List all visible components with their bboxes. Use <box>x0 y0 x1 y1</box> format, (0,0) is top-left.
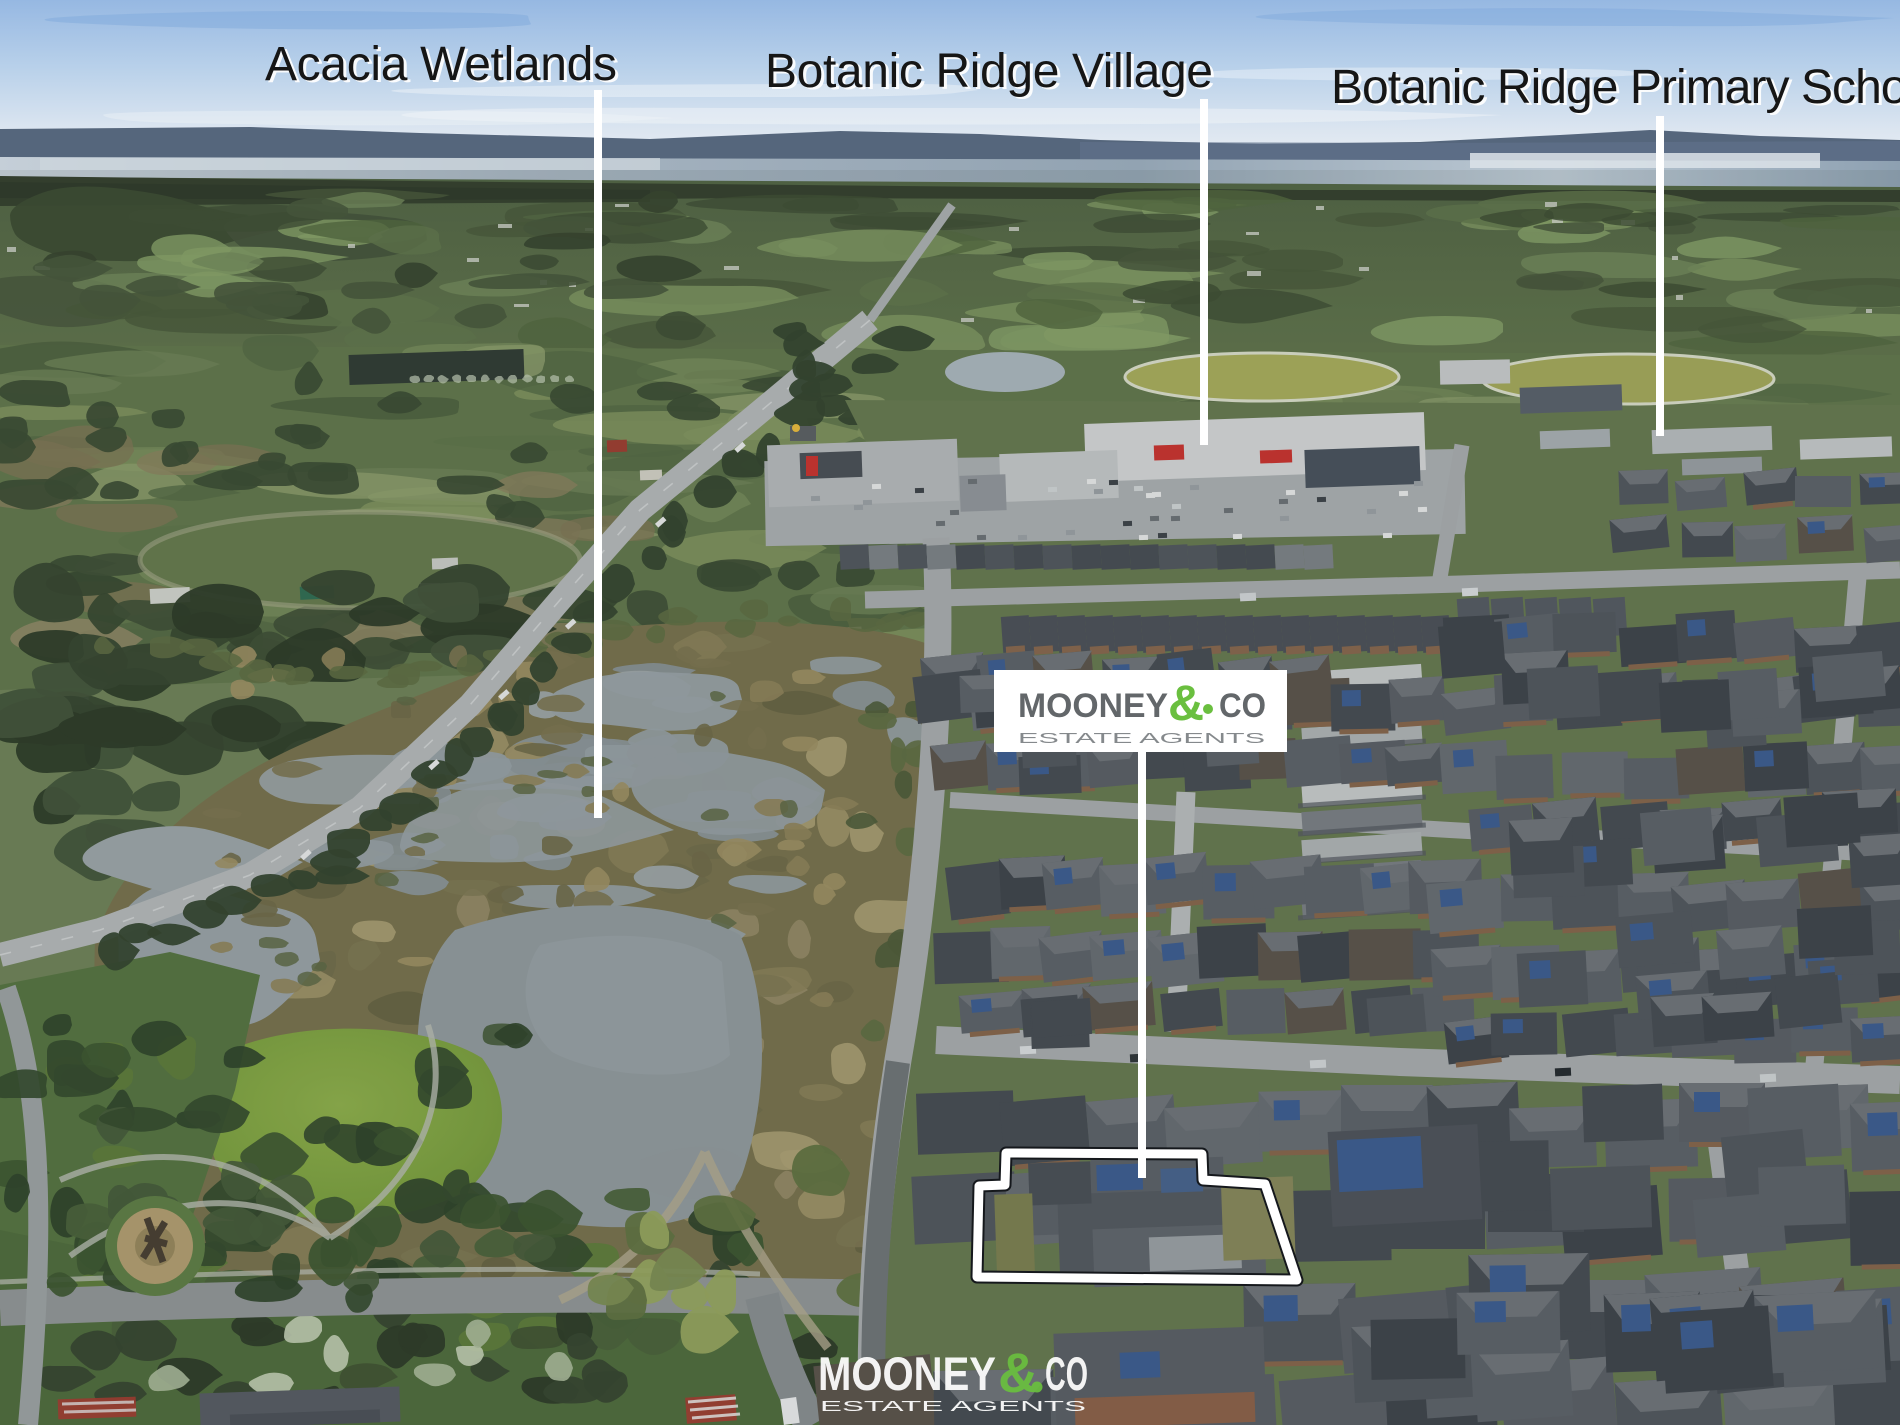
svg-text:ESTATE AGENTS: ESTATE AGENTS <box>1018 730 1265 747</box>
svg-text:Botanic Ridge Primary School: Botanic Ridge Primary School <box>1331 61 1900 114</box>
svg-text:CO: CO <box>1219 687 1266 725</box>
svg-text:&: & <box>998 1341 1038 1404</box>
svg-text:&: & <box>1168 675 1204 731</box>
svg-text:Botanic Ridge Village: Botanic Ridge Village <box>765 45 1213 98</box>
svg-text:Acacia Wetlands: Acacia Wetlands <box>265 38 617 91</box>
svg-text:CO: CO <box>1045 1347 1088 1400</box>
svg-text:MOONEY: MOONEY <box>1018 687 1168 725</box>
svg-text:MOONEY: MOONEY <box>818 1347 996 1400</box>
svg-text:ESTATE AGENTS: ESTATE AGENTS <box>820 1399 1086 1415</box>
